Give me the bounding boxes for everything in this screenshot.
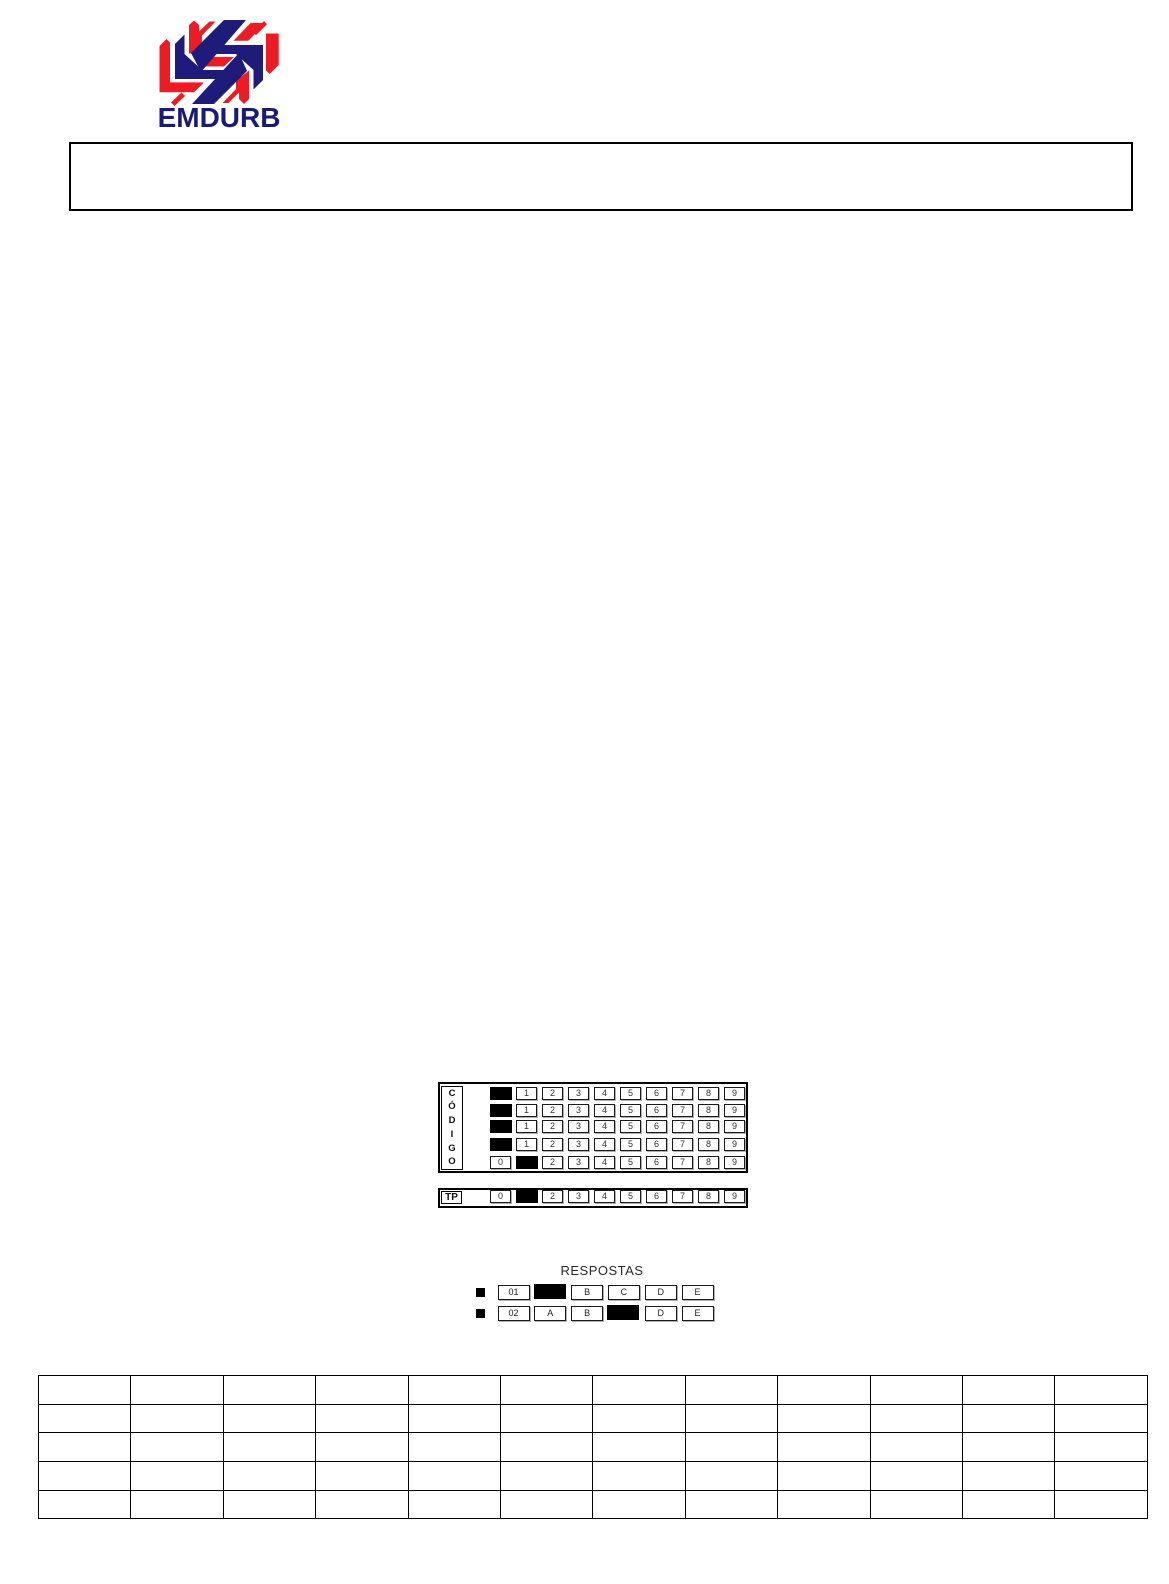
svg-text:EMDURB: EMDURB (158, 102, 280, 130)
